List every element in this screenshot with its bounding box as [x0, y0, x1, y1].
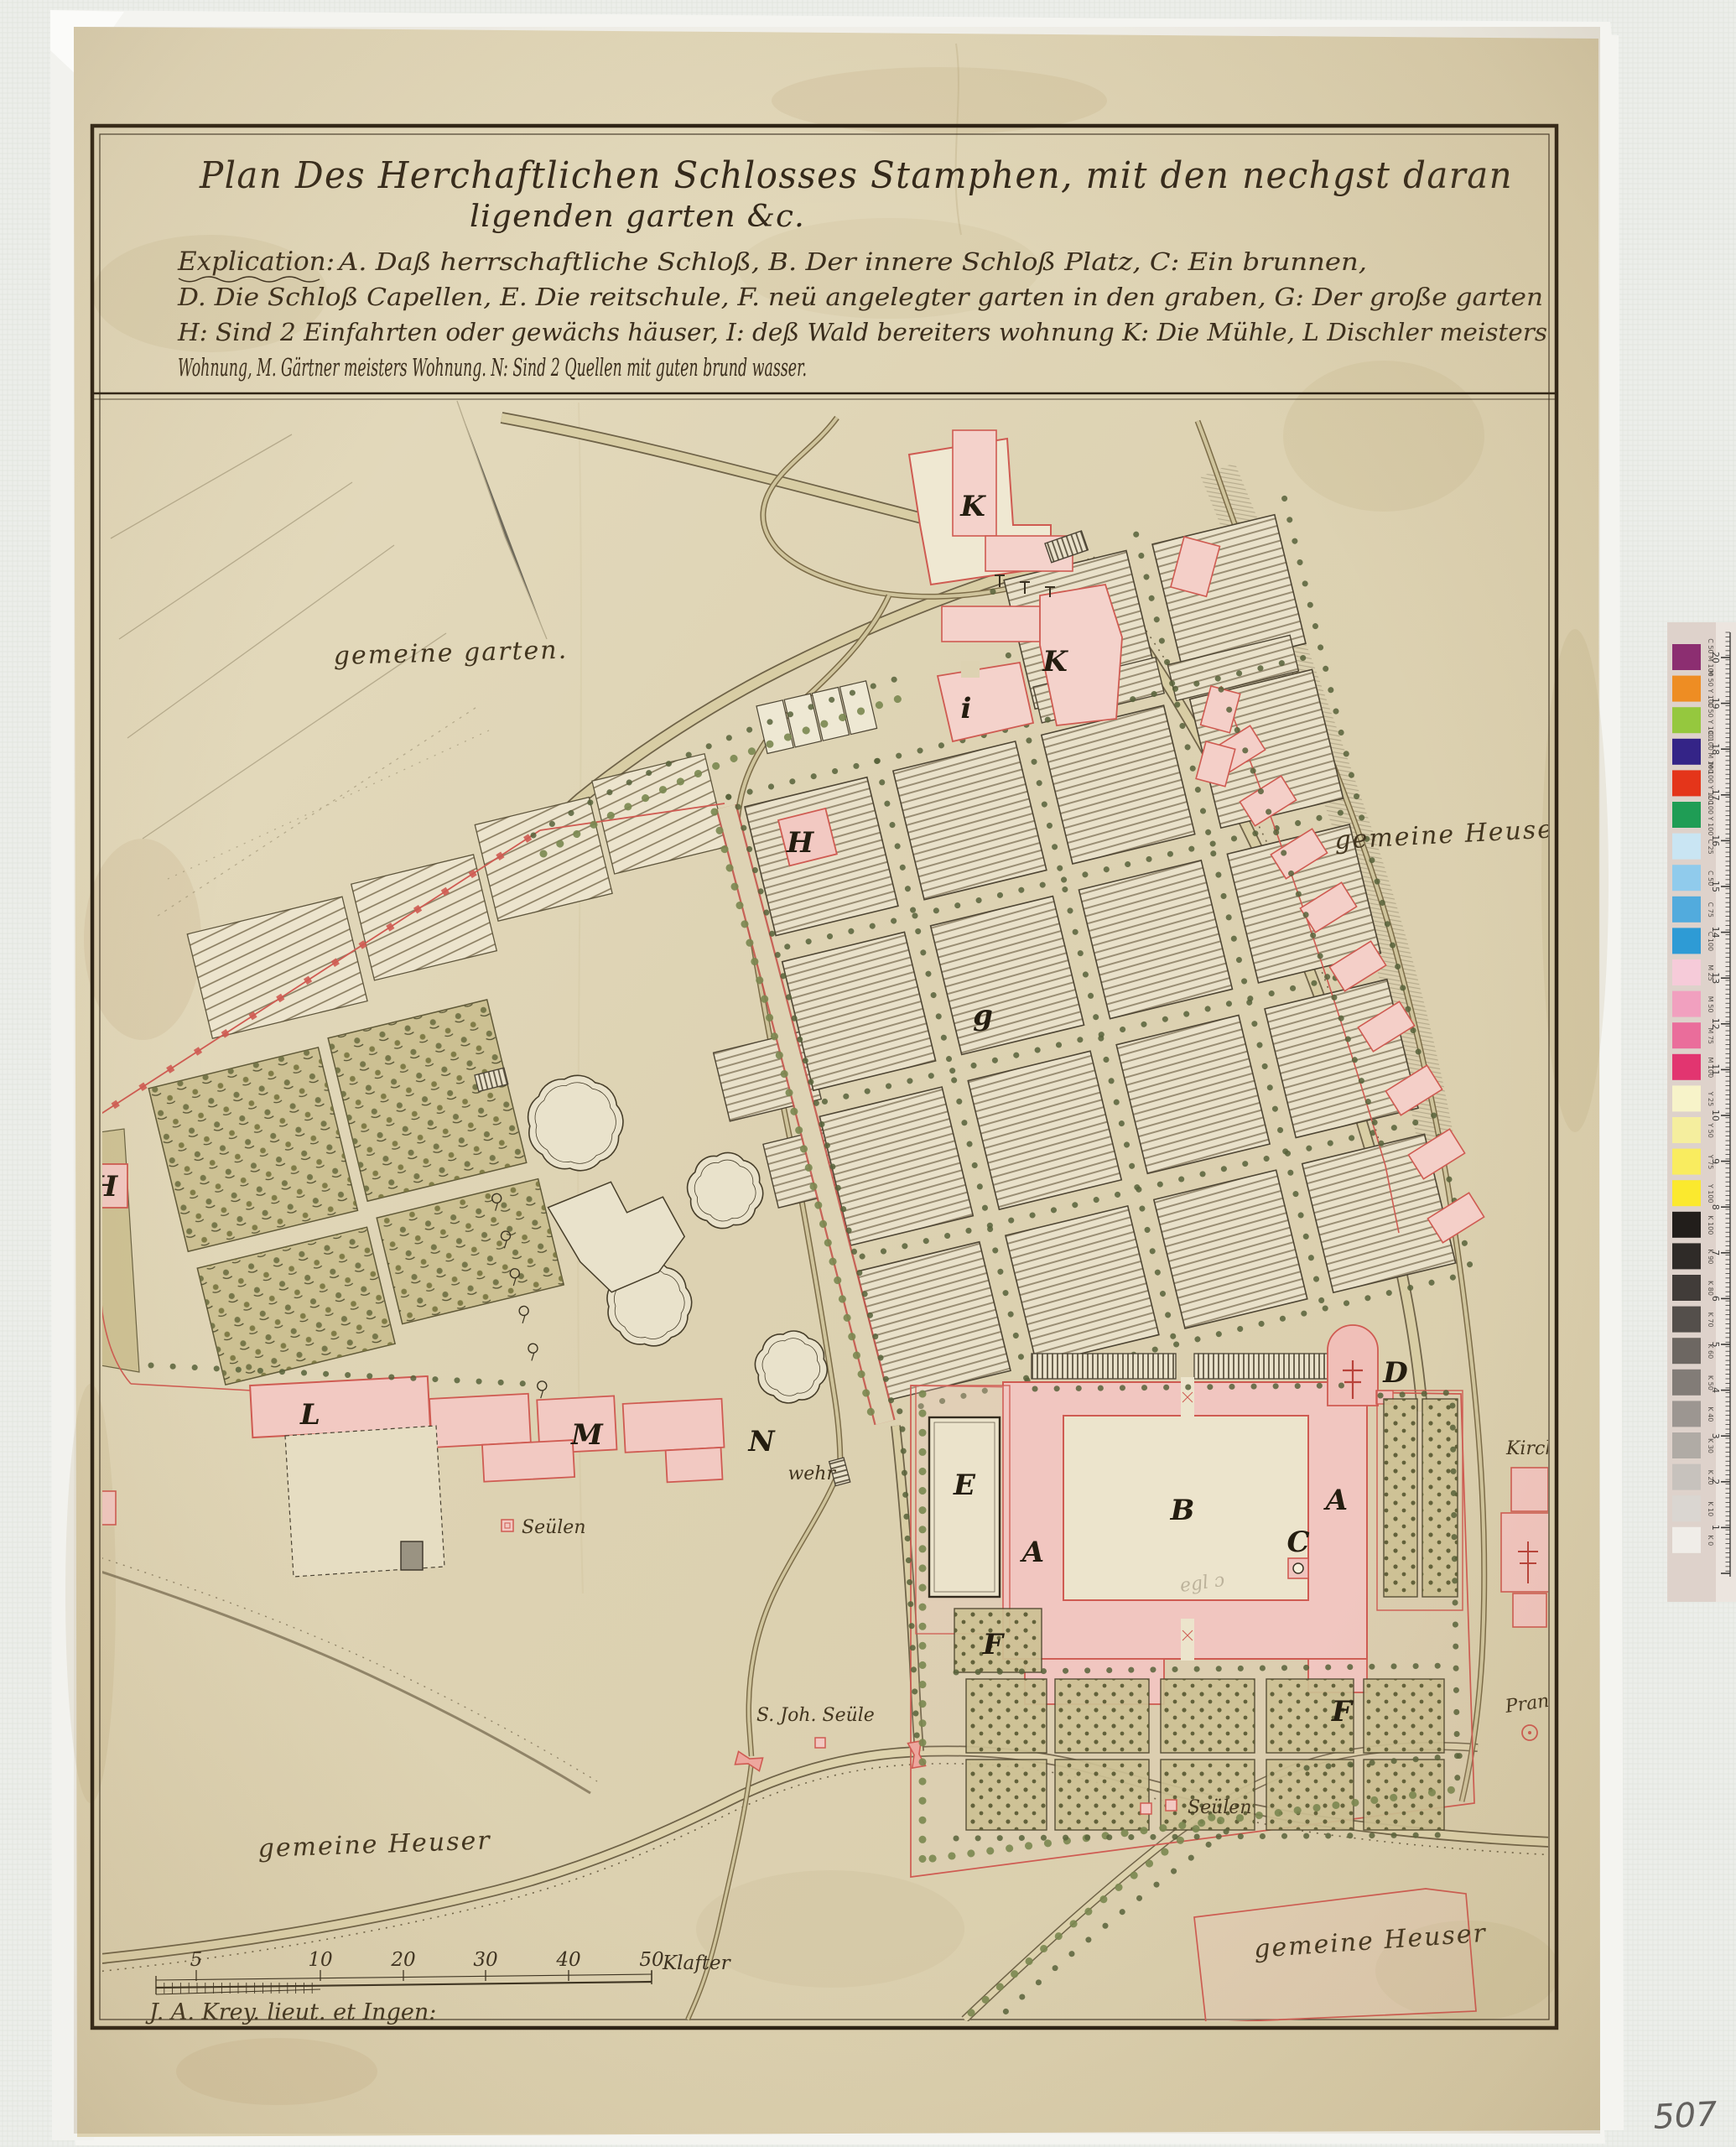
ruler-number: 7 [1710, 1250, 1721, 1255]
letter-n: N [747, 1425, 776, 1458]
inventory-number: 507 [1652, 2095, 1718, 2137]
color-patch-label: M 50 [1707, 996, 1714, 1013]
label-seulen-right: Seülen [1188, 1797, 1251, 1818]
color-patch [1672, 676, 1701, 702]
letter-c: C [1286, 1526, 1309, 1559]
color-patch [1672, 1149, 1701, 1175]
ruler-number: 20 [1710, 652, 1721, 663]
color-patch [1672, 1180, 1701, 1206]
color-patch-label: K 10 [1707, 1501, 1714, 1516]
map-title-line1: Plan Des Herchaftlichen Schlosses Stamph… [199, 154, 1513, 197]
color-patch-label: K 80 [1707, 1281, 1714, 1296]
scale-tick-label: 10 [308, 1949, 332, 1971]
label-joh-seule: S. Joh. Seüle [756, 1705, 875, 1726]
scale-tick-label: 5 [190, 1949, 203, 1971]
ruler-number: 15 [1710, 881, 1721, 892]
color-patch [1672, 1212, 1701, 1238]
letter-k2: K [1042, 645, 1068, 678]
label-gemeine-garten: gemeine garten. [333, 636, 568, 671]
color-patch [1672, 1401, 1701, 1427]
color-patch [1672, 1054, 1701, 1080]
explication-heading: Explication: [177, 247, 335, 277]
castle-plot-trees [1364, 1679, 1444, 1753]
scanned-map-sheet: Plan Des Herchaftlichen Schlosses Stamph… [0, 0, 1736, 2147]
color-patch-label: Y 100 [1707, 1183, 1714, 1203]
fountain-c [1288, 1558, 1308, 1578]
ruler-number: 8 [1710, 1204, 1721, 1210]
scale-tick-label: 20 [390, 1949, 415, 1971]
ruler-number: 9 [1710, 1158, 1721, 1164]
color-patch [1672, 1275, 1701, 1301]
color-calibration-bar: C 50 M 100M 50 Y 100C 50 Y 100C 100 M 10… [1667, 622, 1736, 1602]
ruler-number: 14 [1710, 927, 1721, 938]
letter-b: B [1170, 1494, 1195, 1527]
letter-h2: H [786, 826, 815, 860]
explication-line: A. Daß herrschaftliche Schloß, B. Der in… [336, 247, 1367, 276]
letter-d: D [1382, 1356, 1408, 1390]
letter-k1: K [959, 490, 986, 523]
color-patch-label: M 75 [1707, 1027, 1714, 1044]
castle-plot-trees [966, 1679, 1047, 1753]
color-patch [1672, 770, 1701, 796]
color-patch-label: Y 50 [1707, 1122, 1714, 1138]
color-patch-label: C 75 [1707, 902, 1714, 918]
color-patch [1672, 1085, 1701, 1111]
label-seulen-left: Seülen [522, 1517, 585, 1538]
letter-a2: A [1323, 1484, 1348, 1517]
castle-plot-trees [1384, 1399, 1417, 1597]
color-patch [1672, 1464, 1701, 1490]
color-patch-label: K 30 [1707, 1438, 1714, 1453]
color-patch [1672, 1495, 1701, 1521]
ruler-number: 6 [1710, 1296, 1721, 1302]
scale-tick-label: 30 [473, 1949, 497, 1971]
castle-plot-trees [1266, 1760, 1354, 1830]
ruler-number: 5 [1710, 1342, 1721, 1348]
castle-complex: egl ɔ [911, 1325, 1474, 1877]
ruler-number: 11 [1710, 1063, 1721, 1075]
color-patch [1672, 644, 1701, 670]
ruler-number: 3 [1710, 1433, 1721, 1439]
color-patch [1672, 802, 1701, 828]
ruler-number: 13 [1710, 972, 1721, 984]
small-gray-building [401, 1541, 423, 1570]
color-patch [1672, 739, 1701, 765]
letter-l: L [299, 1398, 320, 1432]
explication-line: H: Sind 2 Einfahrten oder gewächs häuser… [177, 318, 1547, 346]
letter-a1: A [1020, 1536, 1044, 1569]
terrace-colonnade [1194, 1354, 1340, 1379]
ruler-number: 17 [1710, 789, 1721, 801]
scale-tick-label: 50 [639, 1949, 663, 1971]
color-patch [1672, 1117, 1701, 1143]
letter-m: M [570, 1418, 604, 1452]
color-patch-label: K 0 [1707, 1535, 1714, 1546]
ruler-number: 12 [1710, 1018, 1721, 1030]
color-patch [1672, 1432, 1701, 1458]
scale-tick-label: 40 [555, 1949, 580, 1971]
color-patch [1672, 1527, 1701, 1553]
castle-plot-trees [966, 1760, 1047, 1830]
castle-plot-trees [1055, 1760, 1149, 1830]
color-patch [1672, 1338, 1701, 1364]
ruler-number: 2 [1710, 1479, 1721, 1484]
riding-school-e [929, 1417, 1000, 1597]
explication-line: Wohnung, M. Gärtner meisters Wohnung. N:… [178, 353, 807, 382]
color-patch [1672, 707, 1701, 733]
color-patch-label: C 100 Y 100 [1707, 795, 1714, 836]
letter-g: g [973, 999, 993, 1032]
ruler-number: 19 [1710, 698, 1721, 710]
color-patch [1672, 1370, 1701, 1396]
ruler-number: 16 [1710, 834, 1721, 846]
terrace-colonnade [1032, 1354, 1176, 1379]
ruler-number: 1 [1710, 1525, 1721, 1531]
color-patch-label: K 100 [1707, 1215, 1714, 1235]
color-patch-label: K 70 [1707, 1313, 1714, 1328]
map-title-line2: ligenden garten &c. [470, 200, 805, 234]
letter-e: E [953, 1469, 976, 1502]
scale-unit: Klafter [662, 1952, 732, 1974]
castle-plot-trees [1055, 1679, 1149, 1753]
explication-line: D. Die Schloß Capellen, E. Die reitschul… [177, 283, 1543, 311]
color-patch [1672, 1307, 1701, 1333]
letter-i: i [961, 692, 972, 725]
color-patch [1672, 959, 1701, 985]
signature: J. A. Krey. lieut. et Ingen: [145, 1999, 436, 2025]
color-patch [1672, 865, 1701, 891]
label-wehr: wehr [787, 1463, 836, 1484]
color-patch [1672, 834, 1701, 860]
color-patch [1672, 1243, 1701, 1269]
color-patch [1672, 928, 1701, 954]
color-patch-label: Y 25 [1707, 1091, 1714, 1107]
ruler-number: 4 [1710, 1387, 1721, 1393]
letter-f1: F [982, 1628, 1006, 1661]
color-patch [1672, 1022, 1701, 1048]
letter-f2: F [1331, 1695, 1354, 1729]
color-patch [1672, 897, 1701, 923]
color-patch [1672, 991, 1701, 1017]
ruler-number: 10 [1710, 1110, 1721, 1121]
castle-plot-trees [1161, 1679, 1255, 1753]
ruler-number: 18 [1710, 743, 1721, 755]
color-patch-label: K 40 [1707, 1406, 1714, 1422]
